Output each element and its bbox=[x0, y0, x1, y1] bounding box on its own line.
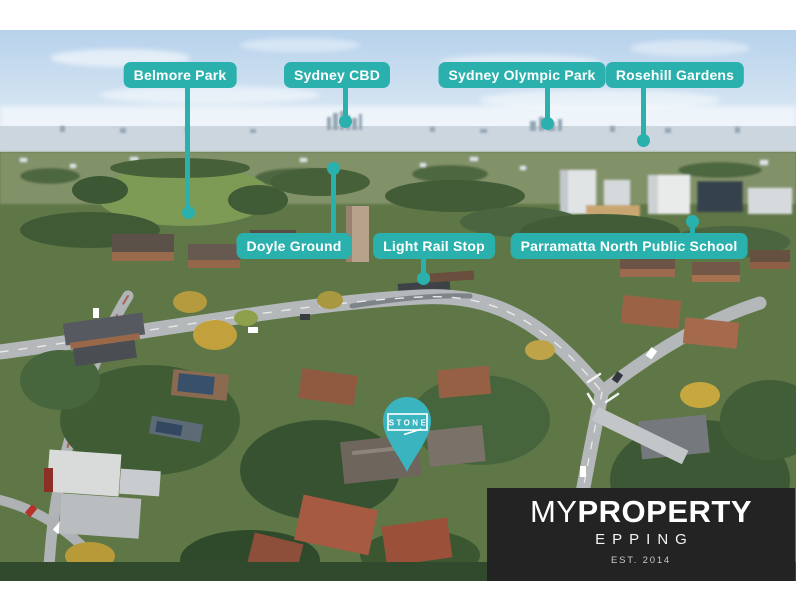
stone-logo-text: STONE bbox=[389, 419, 428, 428]
map-label-rosehill-gardens: Rosehill Gardens bbox=[606, 62, 744, 88]
agency-suburb: EPPING bbox=[494, 531, 795, 548]
agency-name-prefix: MY bbox=[530, 494, 578, 529]
map-label-sydney-olympic-park: Sydney Olympic Park bbox=[439, 62, 606, 88]
anchor-dot-sydney-cbd bbox=[339, 115, 352, 128]
map-label-parramatta-north-public-school: Parramatta North Public School bbox=[511, 233, 748, 259]
property-marketing-image: Belmore Park Sydney CBD Sydney Olympic P… bbox=[0, 0, 800, 600]
stone-property-pin: STONE bbox=[379, 394, 435, 474]
anchor-dot-light-rail-stop bbox=[417, 272, 430, 285]
agency-name: MYPROPERTY bbox=[487, 496, 795, 528]
map-label-doyle-ground: Doyle Ground bbox=[237, 233, 352, 259]
map-label-sydney-cbd: Sydney CBD bbox=[284, 62, 390, 88]
connector-line-rosehill-gardens bbox=[641, 86, 646, 138]
anchor-dot-belmore-park bbox=[182, 206, 195, 219]
anchor-dot-sydney-olympic-park bbox=[541, 117, 554, 130]
connector-line-doyle-ground bbox=[331, 170, 336, 235]
connector-line-belmore-park bbox=[185, 86, 190, 208]
map-label-belmore-park: Belmore Park bbox=[124, 62, 237, 88]
agency-name-suffix: PROPERTY bbox=[577, 494, 752, 529]
agency-established: EST. 2014 bbox=[487, 555, 795, 566]
anchor-dot-doyle-ground bbox=[327, 162, 340, 175]
agency-brand-plate: MYPROPERTY EPPING EST. 2014 bbox=[487, 488, 795, 581]
anchor-dot-parramatta-north-public-school bbox=[686, 215, 699, 228]
pin-teardrop bbox=[383, 397, 431, 472]
map-label-light-rail-stop: Light Rail Stop bbox=[373, 233, 495, 259]
anchor-dot-rosehill-gardens bbox=[637, 134, 650, 147]
